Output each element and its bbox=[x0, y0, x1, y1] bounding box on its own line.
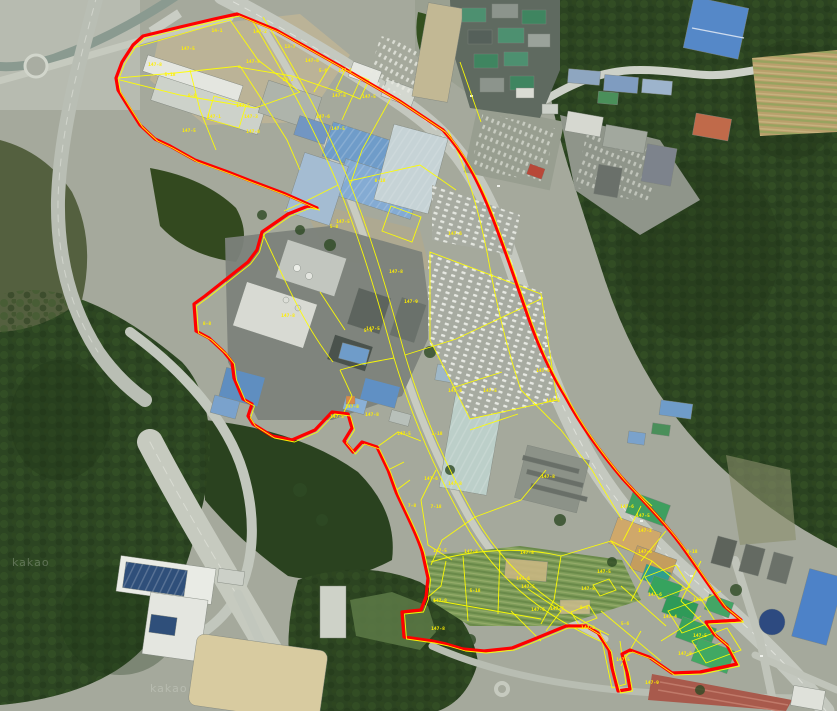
parcel-label: 147-5 bbox=[330, 414, 344, 420]
parcel-label: 147-8 bbox=[433, 598, 447, 604]
parcel-label: 147-1 bbox=[207, 114, 221, 120]
parcel-label: 147-8 bbox=[389, 269, 403, 275]
parcel-label: 8-8 bbox=[188, 93, 197, 99]
parcel-label: 1-18 bbox=[431, 431, 442, 437]
parcel-label: 147-5 bbox=[236, 103, 250, 109]
parcel-label: 147-8 bbox=[581, 625, 595, 631]
parcel-label: 5-8 bbox=[330, 224, 339, 230]
parcel-label: 147-5 bbox=[693, 633, 707, 639]
parcel-label: 7-18 bbox=[430, 504, 441, 510]
parcel-label: 147-5 bbox=[331, 126, 345, 132]
parcel-label: 14-1 bbox=[211, 28, 222, 34]
parcel-label: 147-9 bbox=[404, 299, 418, 305]
parcel-label: 5-4 bbox=[364, 328, 373, 334]
parcel-label: 147-6 bbox=[638, 549, 652, 555]
parcel-label: 147-8 bbox=[541, 474, 555, 480]
parcel-label: 147-8 bbox=[464, 549, 478, 555]
parcel-label: 8-18 bbox=[374, 178, 385, 184]
parcel-label: 147-5 bbox=[636, 513, 650, 519]
parcel-label: 147-8 bbox=[581, 586, 595, 592]
parcel-label: 7-8 bbox=[408, 503, 417, 509]
parcel-label: 147-2 bbox=[253, 29, 267, 35]
parcel-label: 147-5 bbox=[397, 431, 411, 437]
parcel-label: 147-8 bbox=[448, 481, 462, 487]
parcel-label: 147-6 bbox=[424, 476, 438, 482]
parcel-label: 8-18 bbox=[686, 549, 697, 555]
parcel-label: 147-8 bbox=[332, 93, 346, 99]
parcel-label: 147-5 bbox=[362, 94, 376, 100]
parcel-label: 147-5 bbox=[182, 128, 196, 134]
parcel-label: 147-8 bbox=[693, 597, 707, 603]
parcel-label: 147-6 bbox=[448, 231, 462, 237]
parcel-label: 147-8 bbox=[520, 550, 534, 556]
parcel-label: 147-5 bbox=[597, 569, 611, 575]
parcel-label: 147-5 bbox=[338, 68, 352, 74]
parcel-label: 147-2 bbox=[638, 528, 652, 534]
satellite-map[interactable]: 147-5147-814-1147-2147-513-7147-65-6147-… bbox=[0, 0, 837, 711]
parcel-label: 147-7 bbox=[550, 606, 564, 612]
parcel-label: 147-8 bbox=[281, 313, 295, 319]
map-viewport[interactable]: 147-5147-814-1147-2147-513-7147-65-6147-… bbox=[0, 0, 837, 711]
parcel-label: 147-6 bbox=[316, 114, 330, 120]
parcel-label: 147-6 bbox=[531, 607, 545, 613]
parcel-label: 147-4 bbox=[663, 614, 677, 620]
parcel-label: 147-5 bbox=[483, 388, 497, 394]
parcel-label: 147-6 bbox=[536, 368, 550, 374]
parcel-label: 147-8 bbox=[678, 651, 692, 657]
parcel-label: 5-18 bbox=[469, 588, 480, 594]
parcel-label: 147-8 bbox=[148, 62, 162, 68]
parcel-label: 147-5 bbox=[246, 59, 260, 65]
parcel-label: 147-5 bbox=[433, 548, 447, 554]
parcel-label: 147-5 bbox=[181, 46, 195, 52]
parcel-label: 147-5 bbox=[521, 584, 535, 590]
parcel-label: 5-18 bbox=[164, 72, 175, 78]
parcel-label: 147-8 bbox=[431, 626, 445, 632]
parcel-label: 5-6 bbox=[621, 621, 630, 627]
parcel-label: 147-5 bbox=[616, 657, 630, 663]
parcel-label: 147-8 bbox=[448, 388, 462, 394]
parcel-label: 147-8 bbox=[246, 129, 260, 135]
parcel-label: 147-9 bbox=[645, 680, 659, 686]
parcel-label: 147-6 bbox=[516, 576, 530, 582]
parcel-label: 8-8 bbox=[203, 321, 212, 327]
parcel-label: 147-8 bbox=[365, 412, 379, 418]
parcel-label: 8-8 bbox=[580, 605, 589, 611]
parcel-label: 147-5 bbox=[546, 398, 560, 404]
parcel-label: 13-2 bbox=[282, 77, 293, 83]
parcel-label: 147-6 bbox=[620, 504, 634, 510]
parcel-label: 147-6 bbox=[305, 58, 319, 64]
parcel-label: 147-5 bbox=[336, 219, 350, 225]
parcel-label: 147-8 bbox=[345, 404, 359, 410]
parcel-label: 147-3 bbox=[244, 114, 258, 120]
parcel-label: 147-6 bbox=[648, 592, 662, 598]
parcel-label: 13-7 bbox=[284, 44, 295, 50]
parcel-label: 5-6 bbox=[319, 68, 328, 74]
